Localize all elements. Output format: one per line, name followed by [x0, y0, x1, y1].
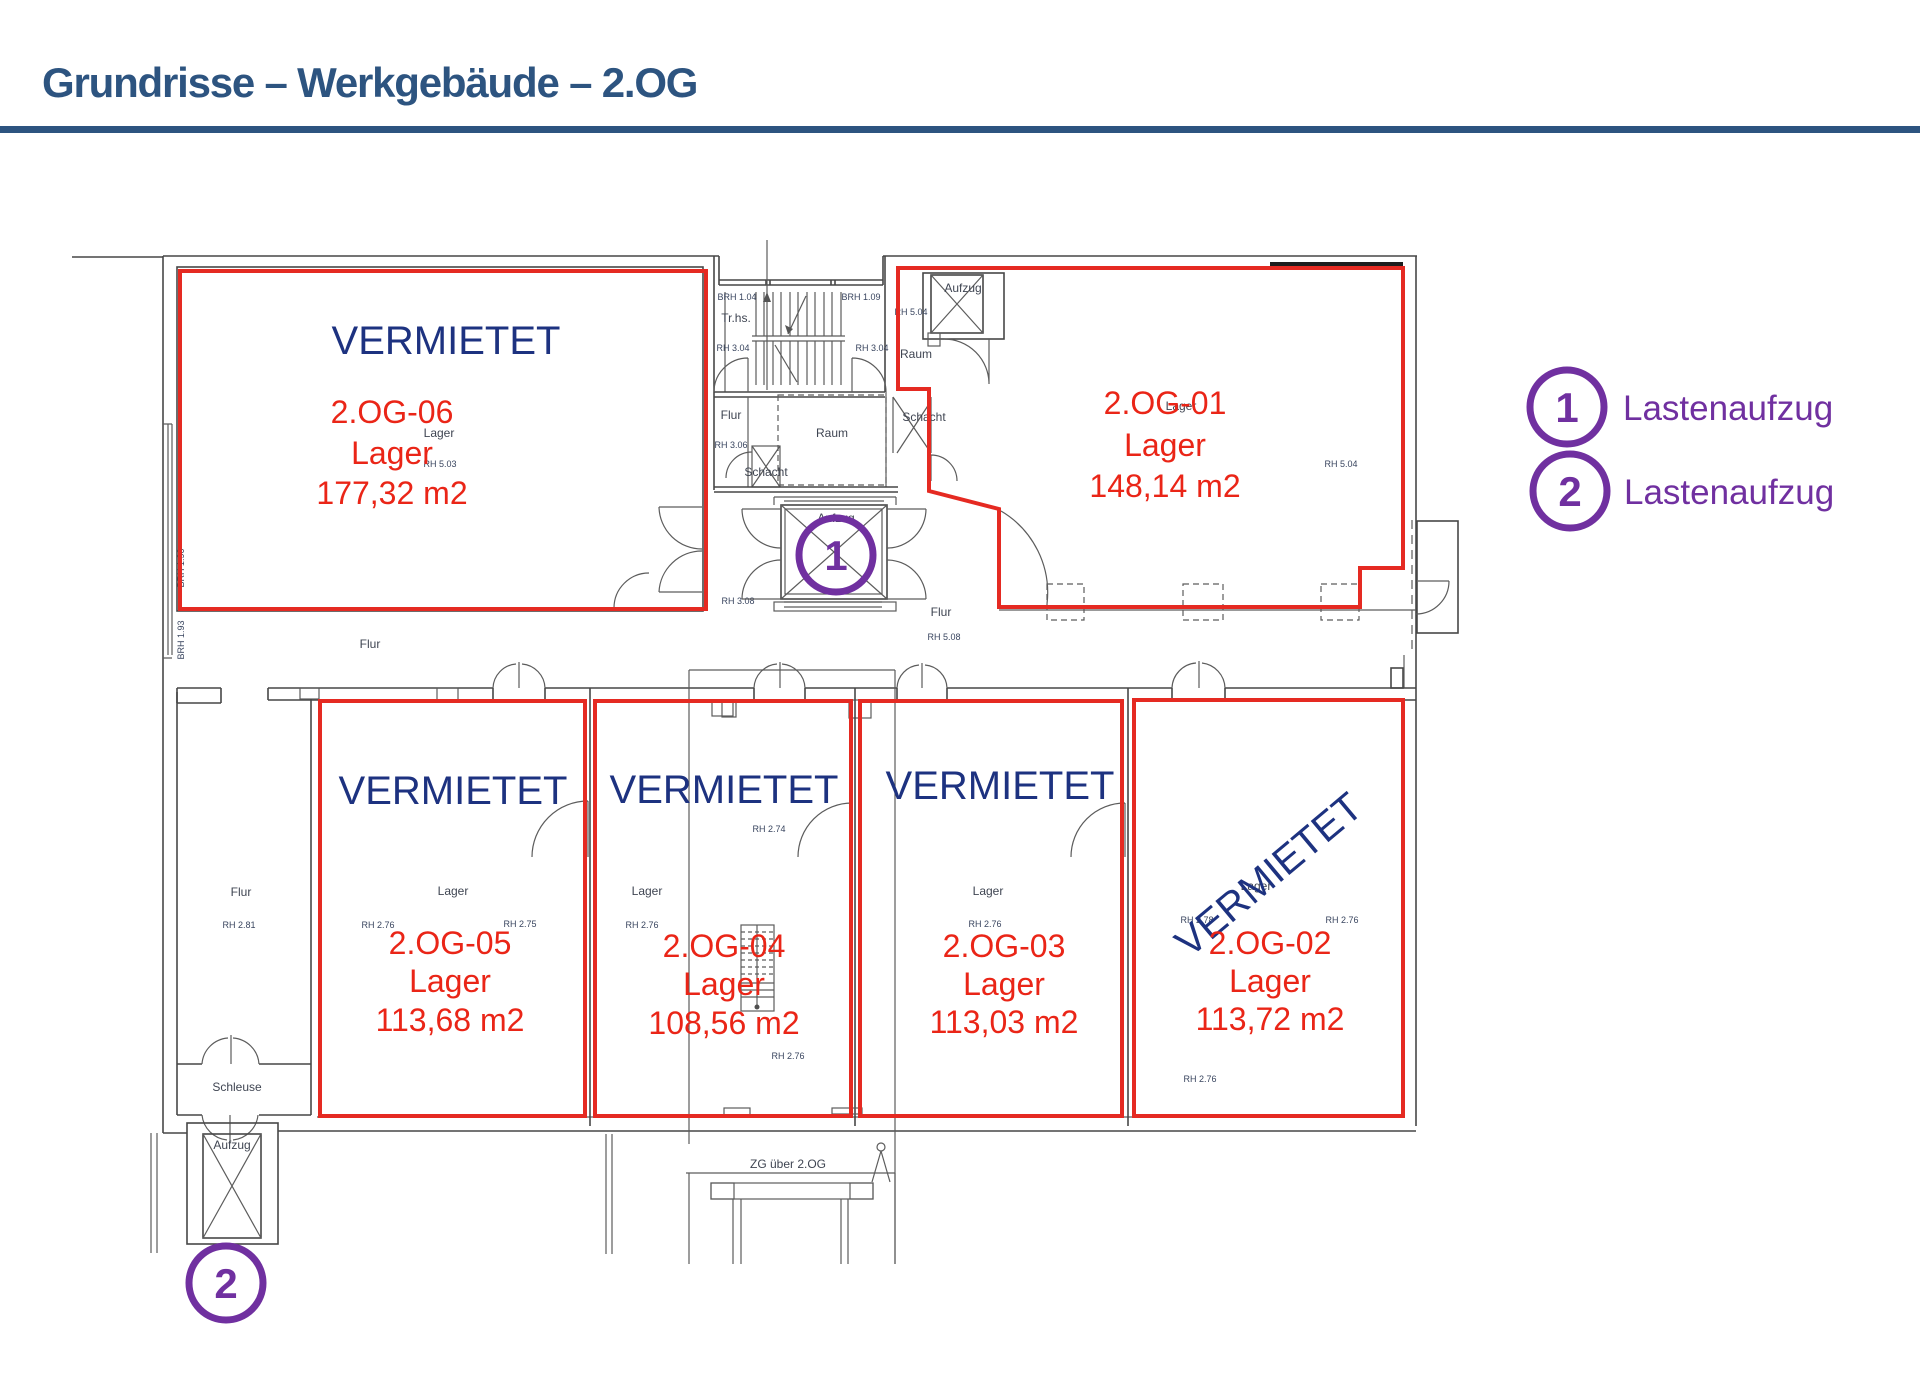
svg-text:RH 2.74: RH 2.74: [752, 824, 785, 834]
svg-text:VERMIETET: VERMIETET: [332, 319, 561, 363]
svg-text:RH 2.76: RH 2.76: [1325, 915, 1358, 925]
svg-text:Lager: Lager: [438, 884, 469, 898]
svg-text:Schacht: Schacht: [902, 410, 946, 424]
svg-text:RH 3.04: RH 3.04: [855, 343, 888, 353]
svg-text:Lager: Lager: [409, 963, 491, 999]
svg-text:2.OG-01: 2.OG-01: [1104, 385, 1227, 421]
svg-text:Grundrisse – Werkgebäude – 2.O: Grundrisse – Werkgebäude – 2.OG: [42, 59, 697, 106]
svg-text:RH 5.04: RH 5.04: [1324, 459, 1357, 469]
svg-text:Lager: Lager: [632, 884, 663, 898]
svg-text:Flur: Flur: [231, 885, 252, 899]
svg-text:Schleuse: Schleuse: [212, 1080, 262, 1094]
svg-text:113,03 m2: 113,03 m2: [930, 1004, 1079, 1040]
svg-text:2.OG-02: 2.OG-02: [1209, 925, 1332, 961]
svg-text:BRH 1.04: BRH 1.04: [717, 292, 756, 302]
svg-text:VERMIETET: VERMIETET: [886, 764, 1115, 808]
svg-text:Raum: Raum: [816, 426, 848, 440]
svg-text:RH 5.08: RH 5.08: [927, 632, 960, 642]
svg-text:BRH 1.93: BRH 1.93: [176, 620, 186, 659]
svg-text:1: 1: [824, 532, 847, 579]
svg-text:2.OG-04: 2.OG-04: [663, 928, 786, 964]
svg-text:RH 3.04: RH 3.04: [716, 343, 749, 353]
svg-text:Lager: Lager: [683, 966, 765, 1002]
svg-text:Lastenaufzug: Lastenaufzug: [1624, 473, 1834, 512]
svg-text:Lager: Lager: [1124, 427, 1206, 463]
svg-text:Flur: Flur: [721, 408, 742, 422]
svg-text:Lager: Lager: [351, 435, 433, 471]
svg-text:BRH 1.09: BRH 1.09: [841, 292, 880, 302]
svg-text:Flur: Flur: [360, 637, 381, 651]
svg-text:Lager: Lager: [973, 884, 1004, 898]
svg-text:RH 3.06: RH 3.06: [714, 440, 747, 450]
svg-text:113,72 m2: 113,72 m2: [1196, 1001, 1345, 1037]
svg-text:RH 2.81: RH 2.81: [222, 920, 255, 930]
svg-text:2: 2: [1558, 468, 1581, 515]
svg-text:VERMIETET: VERMIETET: [610, 768, 839, 812]
svg-text:RH 3.08: RH 3.08: [721, 596, 754, 606]
svg-text:2.OG-03: 2.OG-03: [943, 928, 1066, 964]
svg-text:Aufzug: Aufzug: [944, 281, 981, 295]
svg-text:RH 2.76: RH 2.76: [771, 1051, 804, 1061]
svg-text:Aufzug: Aufzug: [213, 1138, 250, 1152]
svg-text:Schacht: Schacht: [744, 465, 788, 479]
svg-text:VERMIETET: VERMIETET: [339, 769, 568, 813]
svg-text:Tr.hs.: Tr.hs.: [721, 311, 751, 325]
svg-text:Flur: Flur: [931, 605, 952, 619]
svg-text:2.OG-06: 2.OG-06: [331, 394, 454, 430]
svg-text:177,32 m2: 177,32 m2: [316, 475, 467, 511]
svg-text:2: 2: [214, 1260, 237, 1307]
svg-text:ZG über 2.OG: ZG über 2.OG: [750, 1157, 826, 1171]
svg-text:RH 2.76: RH 2.76: [1183, 1074, 1216, 1084]
svg-text:Lager: Lager: [1229, 963, 1311, 999]
svg-text:108,56 m2: 108,56 m2: [648, 1005, 799, 1041]
svg-text:113,68 m2: 113,68 m2: [376, 1002, 525, 1038]
svg-text:Lager: Lager: [963, 966, 1045, 1002]
svg-text:Lastenaufzug: Lastenaufzug: [1623, 389, 1833, 428]
svg-text:1: 1: [1555, 384, 1578, 431]
svg-text:Raum: Raum: [900, 347, 932, 361]
svg-text:148,14 m2: 148,14 m2: [1089, 468, 1240, 504]
svg-text:2.OG-05: 2.OG-05: [389, 925, 512, 961]
svg-text:RH 2.76: RH 2.76: [625, 920, 658, 930]
